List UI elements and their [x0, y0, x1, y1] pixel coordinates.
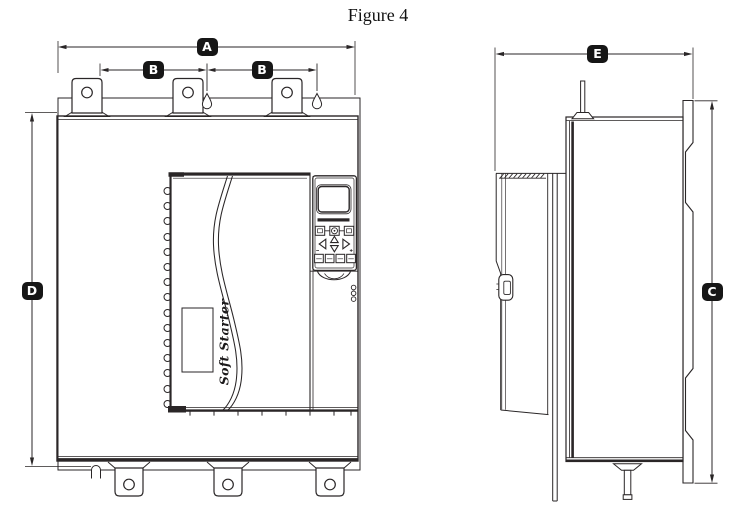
top-mounting-tabs	[65, 79, 309, 117]
key-button	[315, 226, 324, 235]
bottom-stud	[614, 464, 642, 500]
mount-hole	[183, 87, 194, 98]
front-view	[25, 41, 360, 496]
figure-4-technical-drawing: Figure 4 Soft Starter A B B D E C	[0, 0, 750, 505]
mount-hole	[223, 479, 234, 490]
front-door	[168, 173, 310, 413]
drawing-canvas	[0, 0, 750, 505]
nameplate	[182, 308, 213, 372]
vent-hole	[351, 297, 356, 302]
top-stud	[572, 81, 594, 119]
device-brand-label: Soft Starter	[217, 294, 233, 391]
mount-hole	[282, 87, 293, 98]
dim-label-e: E	[587, 45, 608, 63]
mount-hole	[124, 479, 135, 490]
display-screen	[318, 187, 349, 213]
led-strip	[318, 218, 350, 221]
side-cover	[496, 173, 566, 501]
dim-label-c: C	[702, 283, 723, 301]
vent-hole	[351, 291, 356, 296]
dim-label-a: A	[197, 38, 218, 56]
dim-label-b1: B	[143, 61, 164, 79]
side-backplate	[683, 101, 693, 484]
dim-label-d: D	[22, 282, 43, 300]
side-body	[566, 117, 683, 462]
figure-title: Figure 4	[288, 5, 468, 26]
vent-hole	[351, 285, 356, 290]
side-view	[495, 48, 718, 502]
mount-hole	[325, 479, 336, 490]
dim-label-b2: B	[252, 61, 273, 79]
key-button	[344, 226, 353, 235]
mount-hole	[82, 87, 93, 98]
dimension-B	[100, 64, 317, 77]
bottom-mounting-tabs	[108, 462, 351, 496]
